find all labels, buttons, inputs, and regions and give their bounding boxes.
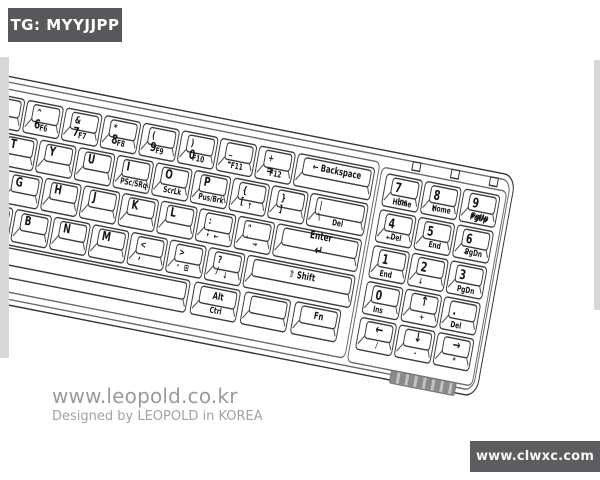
keytop: → (441, 336, 471, 359)
key-label: 3 PgDn (456, 267, 489, 300)
key-0: ) 0F10 (176, 130, 219, 170)
numlock-led (411, 161, 421, 172)
keytop: 1 End (377, 249, 407, 272)
keytop: 0 Ins (370, 285, 400, 308)
watermark: www.leopold.co.kr Designed by LEOPOLD in… (52, 384, 263, 424)
site-badge-text: www.clwxc.com (476, 449, 594, 464)
key-label: I (125, 162, 131, 176)
key-np7: 7 HomeIns (381, 173, 424, 213)
key-label: H (53, 185, 63, 200)
key-np-down: ↓- (393, 324, 436, 364)
scrolllock-led (489, 176, 499, 187)
key-np-right: →* (432, 332, 475, 372)
keyboard-illustration: % 5F5^ 6F6& 7F7* 8F8( 9F9) 0F10_ -F11+ =… (0, 2, 524, 408)
key-6: ^ 6F6 (22, 99, 65, 139)
key-label: N (62, 224, 72, 239)
key-np3: 3 PgDn (445, 260, 488, 300)
keytop: * 8 (108, 119, 138, 142)
key-j: J (78, 185, 121, 225)
keytop: > . (174, 243, 204, 266)
keytop: 4 ← (383, 213, 413, 236)
keytop: ← (364, 320, 394, 343)
keytop: + = (263, 149, 293, 172)
keytop: M (96, 228, 126, 251)
key-np-up: ↑+ (400, 288, 443, 328)
key-label: O (164, 170, 174, 185)
key-h: H (40, 177, 83, 217)
keytop: & 7 (69, 111, 99, 134)
keytop: 7 Home (390, 177, 420, 200)
key-label: L (169, 208, 177, 223)
keytop: J (87, 189, 117, 212)
key-np4: 4 ←Del (374, 209, 417, 249)
watermark-url: www.leopold.co.kr (52, 384, 263, 408)
key-label: → (451, 339, 461, 355)
key-quote: " '→ (233, 215, 276, 255)
key-bracket-open: { [↑ (228, 177, 271, 217)
key-np2: 2 ↓ (406, 252, 449, 292)
key-period: > .⊞ (165, 239, 208, 279)
keytop: Fn (299, 305, 339, 330)
key-label: ← Backspace (312, 162, 362, 182)
key-label: . Del (449, 303, 471, 334)
key-label: U (86, 154, 96, 169)
key-np-left: ←/ (355, 316, 398, 356)
tag-badge-text: TG: MYYJJPP (10, 16, 119, 34)
keytop: 2 ↓ (415, 256, 445, 279)
key-label: Enter ↵ (306, 226, 334, 261)
key-label: M (100, 231, 111, 246)
key-label: K (130, 200, 139, 215)
key-label: 7 Home (391, 180, 426, 214)
key-label: G (14, 177, 24, 192)
key-i: IPSc/SRq (112, 154, 155, 194)
key-label: ⇧ Shift (288, 269, 316, 285)
key-np5: 5End (413, 216, 456, 256)
key-m: M (87, 224, 130, 264)
key-b: B (10, 209, 53, 249)
key-label: 1 End (378, 252, 402, 284)
keytop: N (58, 220, 88, 243)
keytop: " ' (242, 219, 272, 242)
key-label: Alt (212, 291, 225, 304)
keytop: Y (43, 143, 73, 166)
key-label: P (202, 177, 211, 192)
key-9: ( 9F9 (138, 122, 181, 162)
keytop: 8 ↑ (428, 185, 458, 208)
key-label: 5 (425, 224, 434, 242)
key-7: & 7F7 (60, 107, 103, 147)
keytop: < , (135, 235, 165, 258)
key-np1: 1 End (368, 245, 411, 285)
keytop (248, 295, 288, 320)
key-bracket-close: } ] (266, 185, 309, 225)
keytop: : ; (203, 212, 233, 235)
key-l: L (156, 200, 199, 240)
key-minus: _ -F11 (215, 137, 258, 177)
keytop: ( 9 (147, 126, 177, 149)
scan-edge-strip-right (594, 60, 600, 310)
key-label: B (23, 216, 32, 231)
site-badge: www.clwxc.com (470, 441, 600, 472)
key-label: ↓ (412, 332, 422, 348)
key-label: T (9, 139, 17, 154)
keytop: ↑ (409, 292, 439, 315)
key-label: ↑ (419, 296, 429, 312)
key-label: 9 PgUp (469, 196, 501, 229)
key-np6: 6 →PgDn (452, 224, 495, 264)
key-label: < , (137, 239, 147, 262)
key-y: Y (34, 139, 77, 179)
key-label: ← (374, 324, 384, 340)
key-semicolon: : ;← (194, 208, 237, 248)
keytop: ^ 6 (31, 104, 61, 127)
keytop: 9 PgUp (467, 192, 497, 215)
key-comma: < , (126, 231, 169, 271)
tag-badge: TG: MYYJJPP (8, 8, 122, 42)
key-np0: 0 Ins (361, 281, 404, 321)
scan-edge-strip-left (0, 57, 9, 358)
key-8: * 8F8 (99, 115, 142, 155)
key-label: 2 ↓ (417, 260, 430, 289)
keytop: K (126, 197, 156, 220)
key-k: K (117, 192, 160, 232)
key-label: J (91, 192, 97, 206)
key-label: Fn (313, 311, 324, 323)
key-slash: ? /↓ (203, 247, 246, 287)
key-p: PPus/Brk (189, 170, 232, 210)
watermark-designed-by: Designed by LEOPOLD in KOREA (52, 409, 263, 424)
keytop: { [ (237, 181, 267, 204)
key-o: OScrLk (150, 162, 193, 202)
key-label: 0 Ins (372, 288, 392, 319)
keytop: 6 → (461, 228, 491, 251)
keytop: . Del (448, 300, 478, 323)
keytop: } ] (276, 189, 306, 212)
key-np9: 9 PgUpPgUp (458, 188, 501, 228)
keytop: L (165, 204, 195, 227)
keytop: _ - (224, 142, 254, 165)
keytop: ↓ (402, 328, 432, 351)
product-image-page: { "badge": { "text": "TG: MYYJJPP" }, "w… (0, 0, 600, 480)
key-label: Y (48, 147, 57, 162)
keytop: H (49, 181, 79, 204)
keytop: G (10, 174, 40, 197)
key-np-dot: . Del (439, 296, 482, 336)
keytop: U (82, 151, 112, 174)
key-equals: + =F12 (254, 145, 297, 185)
capslock-led (450, 168, 460, 179)
keytop: 3 PgDn (454, 264, 484, 287)
key-label: } ] (278, 192, 287, 215)
keytop: ) 0 (185, 134, 215, 157)
keytop: 5 (422, 220, 452, 243)
key-n: N (49, 216, 92, 256)
key-u: U (73, 147, 116, 187)
keytop: T (5, 136, 35, 159)
keytop: ? / (212, 251, 242, 274)
keytop: B (19, 213, 49, 236)
